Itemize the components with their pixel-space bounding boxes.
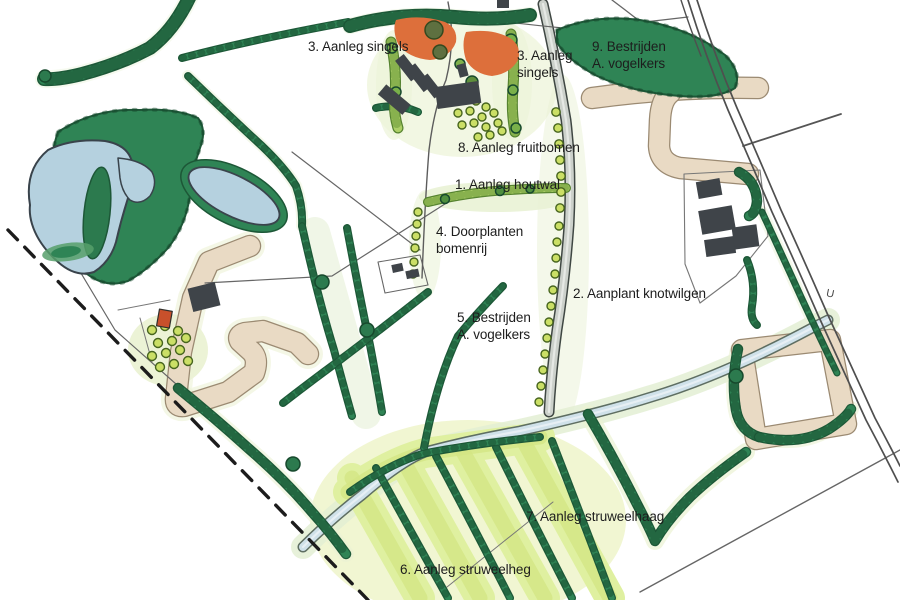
yard-conifer xyxy=(433,45,447,59)
barn-east xyxy=(732,224,760,249)
barn-east xyxy=(704,236,736,257)
plan-map-drawing xyxy=(0,0,900,600)
barn-east xyxy=(696,178,723,199)
yard-conifer xyxy=(425,21,443,39)
forest-north-east xyxy=(557,18,737,96)
barn xyxy=(497,0,509,8)
red-shed xyxy=(157,309,173,328)
landscape-plan-map: 3. Aanleg singels 3. Aanleg singels 9. B… xyxy=(0,0,900,600)
small-farm-barn xyxy=(391,263,403,273)
barn-east xyxy=(698,205,736,235)
